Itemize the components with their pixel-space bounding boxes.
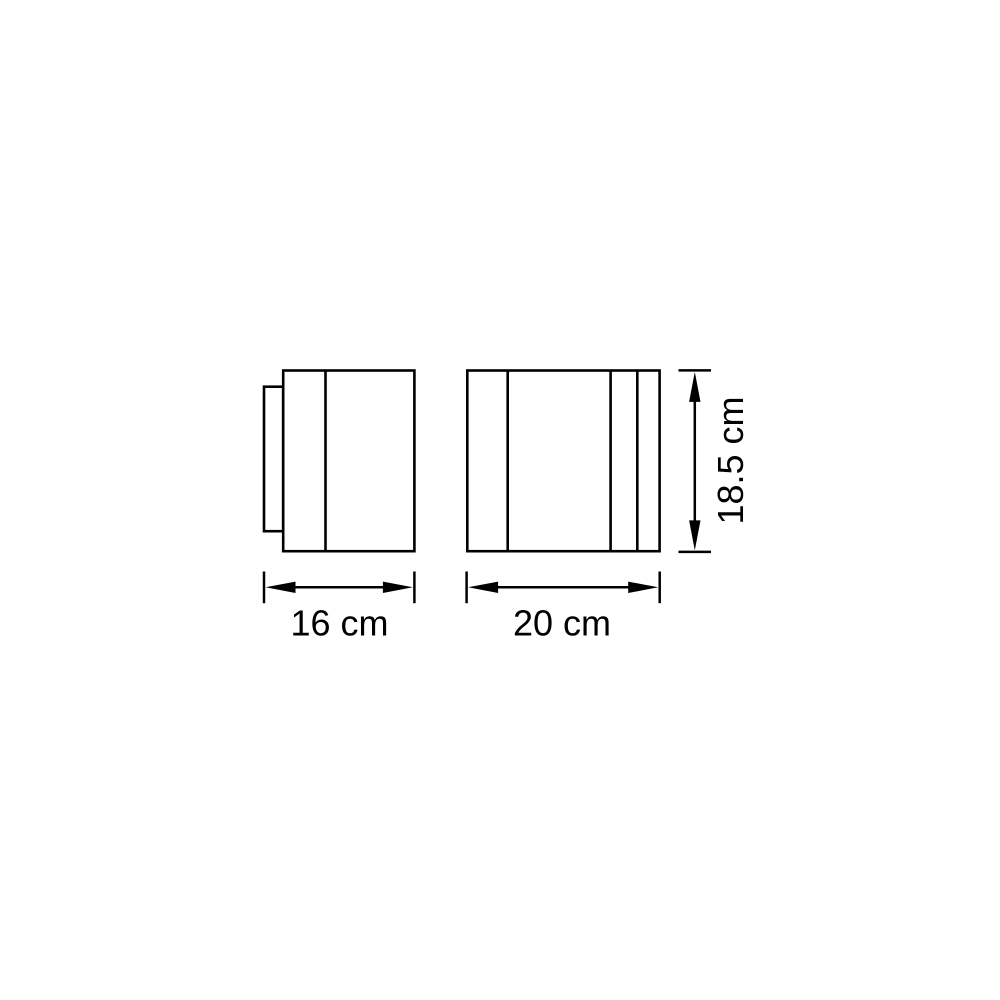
svg-text:20 cm: 20 cm (513, 603, 611, 644)
svg-text:18.5 cm: 18.5 cm (710, 396, 751, 524)
svg-text:16 cm: 16 cm (290, 603, 388, 644)
